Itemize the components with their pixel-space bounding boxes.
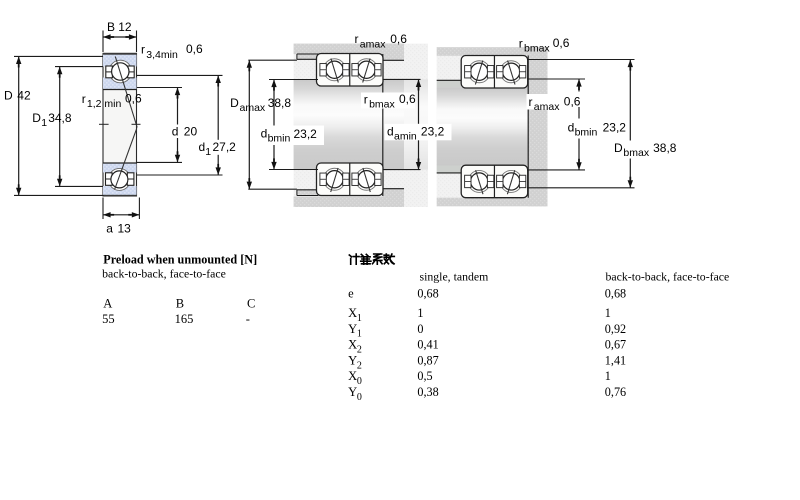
svg-text:r: r xyxy=(519,37,523,51)
svg-text:1: 1 xyxy=(605,306,611,320)
svg-text:amax: amax xyxy=(240,102,266,114)
svg-text:single, tandem: single, tandem xyxy=(420,270,489,284)
svg-text:165: 165 xyxy=(175,312,194,326)
svg-text:amax: amax xyxy=(534,101,560,113)
svg-text:B: B xyxy=(107,20,115,34)
svg-text:1: 1 xyxy=(41,117,47,129)
svg-text:1: 1 xyxy=(205,146,211,158)
svg-text:23,2: 23,2 xyxy=(603,121,627,135)
svg-text:Y: Y xyxy=(348,385,357,399)
svg-text:bmax: bmax xyxy=(524,43,550,55)
svg-text:C: C xyxy=(247,296,255,310)
svg-text:0,6: 0,6 xyxy=(564,95,581,109)
svg-text:B: B xyxy=(176,296,184,310)
svg-text:12: 12 xyxy=(118,20,132,34)
svg-text:a: a xyxy=(106,222,113,236)
svg-text:0,67: 0,67 xyxy=(605,338,626,352)
svg-text:1: 1 xyxy=(605,369,611,383)
svg-text:d: d xyxy=(387,125,394,139)
svg-text:Y: Y xyxy=(348,353,357,367)
svg-text:34,8: 34,8 xyxy=(48,111,72,125)
svg-text:bmin: bmin xyxy=(268,133,291,145)
svg-text:0,5: 0,5 xyxy=(417,369,432,383)
svg-text:0,68: 0,68 xyxy=(605,287,626,301)
svg-text:1: 1 xyxy=(357,329,362,340)
svg-text:0,6: 0,6 xyxy=(399,92,416,106)
svg-text:d: d xyxy=(261,127,268,141)
svg-text:42: 42 xyxy=(17,88,31,102)
svg-text:27,2: 27,2 xyxy=(213,140,237,154)
svg-text:D: D xyxy=(32,111,41,125)
svg-text:38,8: 38,8 xyxy=(268,96,292,110)
svg-text:amax: amax xyxy=(360,38,386,50)
svg-text:2: 2 xyxy=(357,360,362,371)
svg-text:A: A xyxy=(103,296,112,310)
svg-text:X: X xyxy=(348,306,357,320)
svg-text:0,41: 0,41 xyxy=(417,338,438,352)
svg-text:38,8: 38,8 xyxy=(653,141,677,155)
svg-text:0,92: 0,92 xyxy=(605,322,626,336)
svg-text:20: 20 xyxy=(184,124,198,138)
svg-text:X: X xyxy=(348,338,357,352)
svg-text:r: r xyxy=(355,32,359,46)
svg-text:0: 0 xyxy=(357,376,362,387)
svg-text:bmin: bmin xyxy=(575,127,598,139)
svg-text:D: D xyxy=(230,96,239,110)
svg-text:bmax: bmax xyxy=(623,147,649,159)
svg-text:0,38: 0,38 xyxy=(417,385,438,399)
svg-text:amin: amin xyxy=(394,131,417,143)
svg-text:55: 55 xyxy=(102,312,115,326)
svg-text:3,4min: 3,4min xyxy=(146,49,178,61)
svg-text:Y: Y xyxy=(348,322,357,336)
svg-text:r: r xyxy=(364,93,368,107)
svg-text:r: r xyxy=(82,92,86,106)
svg-text:d: d xyxy=(568,121,575,135)
svg-text:1,2 min: 1,2 min xyxy=(87,98,122,110)
svg-text:X: X xyxy=(348,369,357,383)
svg-text:-: - xyxy=(246,312,250,326)
svg-text:0,76: 0,76 xyxy=(605,385,626,399)
svg-text:0,6: 0,6 xyxy=(186,42,203,56)
svg-text:0,68: 0,68 xyxy=(417,287,438,301)
svg-text:1,41: 1,41 xyxy=(605,353,626,367)
svg-text:0: 0 xyxy=(417,322,423,336)
svg-text:23,2: 23,2 xyxy=(421,125,445,139)
svg-text:1: 1 xyxy=(357,313,362,324)
svg-text:0,6: 0,6 xyxy=(390,32,407,46)
svg-text:23,2: 23,2 xyxy=(294,127,318,141)
svg-text:d: d xyxy=(199,140,206,154)
svg-text:back-to-back, face-to-face: back-to-back, face-to-face xyxy=(606,270,730,284)
svg-text:back-to-back, face-to-face: back-to-back, face-to-face xyxy=(102,267,226,281)
svg-text:r: r xyxy=(141,43,145,57)
svg-text:1: 1 xyxy=(417,306,423,320)
svg-text:r: r xyxy=(529,95,533,109)
svg-text:D: D xyxy=(614,141,623,155)
svg-text:0,6: 0,6 xyxy=(553,36,570,50)
svg-text:0,87: 0,87 xyxy=(417,353,438,367)
svg-text:D: D xyxy=(4,88,13,102)
svg-text:0,6: 0,6 xyxy=(125,91,142,105)
svg-text:2: 2 xyxy=(357,345,362,356)
svg-text:e: e xyxy=(348,287,354,301)
svg-text:bmax: bmax xyxy=(369,99,395,111)
svg-text:Preload when unmounted [N]: Preload when unmounted [N] xyxy=(103,252,257,266)
svg-text:0: 0 xyxy=(357,392,362,403)
svg-text:d: d xyxy=(172,124,179,138)
svg-text:13: 13 xyxy=(118,222,132,236)
